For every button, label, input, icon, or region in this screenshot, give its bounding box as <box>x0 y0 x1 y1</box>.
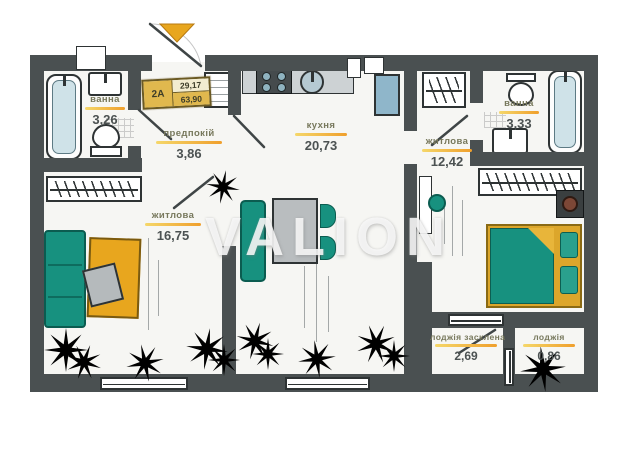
kitchen-sink-icon <box>300 70 324 94</box>
bathtub-icon <box>548 70 582 154</box>
room-area: 0,86 <box>518 349 580 363</box>
wall-bath1-right-top <box>128 55 141 110</box>
room-label-bathroom-right: ванна 3,33 <box>496 98 542 131</box>
label-underline <box>422 149 471 152</box>
wall-kitchen-bedroom-top <box>404 55 417 131</box>
room-label-loggia: лоджія 0,86 <box>518 332 580 363</box>
unit-code: 2А <box>143 80 173 107</box>
sink-icon <box>88 72 122 96</box>
plant-icon <box>378 340 410 372</box>
wall-left <box>30 55 44 392</box>
wall-bath2-left-top <box>470 55 483 103</box>
dimension-line <box>148 238 149 330</box>
room-area: 12,42 <box>418 154 476 169</box>
bed-blanket <box>490 228 554 304</box>
dimension-line <box>158 260 159 316</box>
blanket-fold <box>528 228 554 254</box>
loggia-partition-opening <box>504 348 514 386</box>
plant-icon <box>296 338 339 381</box>
dimension-line <box>328 276 329 332</box>
toilet-tank-icon <box>506 73 536 82</box>
label-underline <box>156 141 222 144</box>
room-area: 16,75 <box>140 228 206 243</box>
room-name: кухня <box>290 120 352 131</box>
plant-icon <box>203 167 242 206</box>
label-underline <box>499 111 538 114</box>
corridor-closet <box>422 72 466 108</box>
fridge-icon <box>374 74 400 116</box>
label-underline <box>435 344 496 347</box>
pillow <box>560 232 578 258</box>
living-wardrobe <box>46 176 142 202</box>
entrance-door-arc <box>150 24 201 66</box>
room-name: лоджія <box>518 332 580 342</box>
wall-bath2-bottom <box>470 152 584 166</box>
room-label-kitchen: кухня 20,73 <box>290 120 352 153</box>
vent-shaft-kitchen-a <box>347 58 361 78</box>
wall-top-right <box>205 55 598 71</box>
dimension-line <box>462 200 463 256</box>
room-name: ванна <box>82 94 128 105</box>
room-name: предпокій <box>150 128 228 139</box>
room-area: 3,33 <box>496 116 542 131</box>
bathtub-icon <box>46 74 82 160</box>
sink-icon <box>492 128 528 154</box>
room-area: 2,69 <box>430 349 502 363</box>
room-name: ванна <box>496 98 542 109</box>
room-label-hallway: предпокій 3,86 <box>150 128 228 161</box>
plant-icon <box>252 338 284 370</box>
loggia-door-window <box>448 314 504 326</box>
room-label-loggia-glazed: лоджія засклена 2,69 <box>430 332 502 363</box>
room-area: 3,86 <box>150 146 228 161</box>
wall-hall-kitchen <box>228 55 241 115</box>
entrance-marker-icon <box>160 24 194 42</box>
vent-shaft-kitchen-b <box>364 57 384 74</box>
room-name: житлова <box>418 136 476 147</box>
room-label-bedroom: житлова 12,42 <box>418 136 476 169</box>
plant-icon <box>122 340 167 385</box>
sofa <box>44 230 86 328</box>
room-label-bathroom-left: ванна 3,26 <box>82 94 128 127</box>
room-label-living: житлова 16,75 <box>140 210 206 243</box>
dimension-line <box>304 266 305 328</box>
room-name: житлова <box>140 210 206 221</box>
label-underline <box>85 107 124 110</box>
pillow <box>560 266 578 294</box>
bedside-table <box>556 190 584 218</box>
entrance-door-leaf <box>150 24 201 66</box>
wall-bath1-bottom <box>30 158 142 172</box>
floor-plan: ванна 3,26 предпокій 3,86 кухня 20,73 жи… <box>0 0 630 475</box>
label-underline <box>523 344 576 347</box>
room-area: 3,26 <box>82 112 128 127</box>
wall-right <box>584 55 598 392</box>
bed <box>486 224 582 308</box>
window-kitchen <box>285 377 370 390</box>
room-area: 20,73 <box>290 138 352 153</box>
room-name: лоджія засклена <box>430 332 502 342</box>
stove-icon <box>256 68 292 94</box>
unit-tag: 2А 29,17 63,90 <box>141 76 211 110</box>
unit-total-area: 63,90 <box>173 91 210 106</box>
vent-shaft-bath1 <box>76 46 106 70</box>
label-underline <box>145 223 201 226</box>
toilet-tank-icon <box>90 146 122 157</box>
label-underline <box>295 133 348 136</box>
watermark: VALION <box>205 206 453 268</box>
